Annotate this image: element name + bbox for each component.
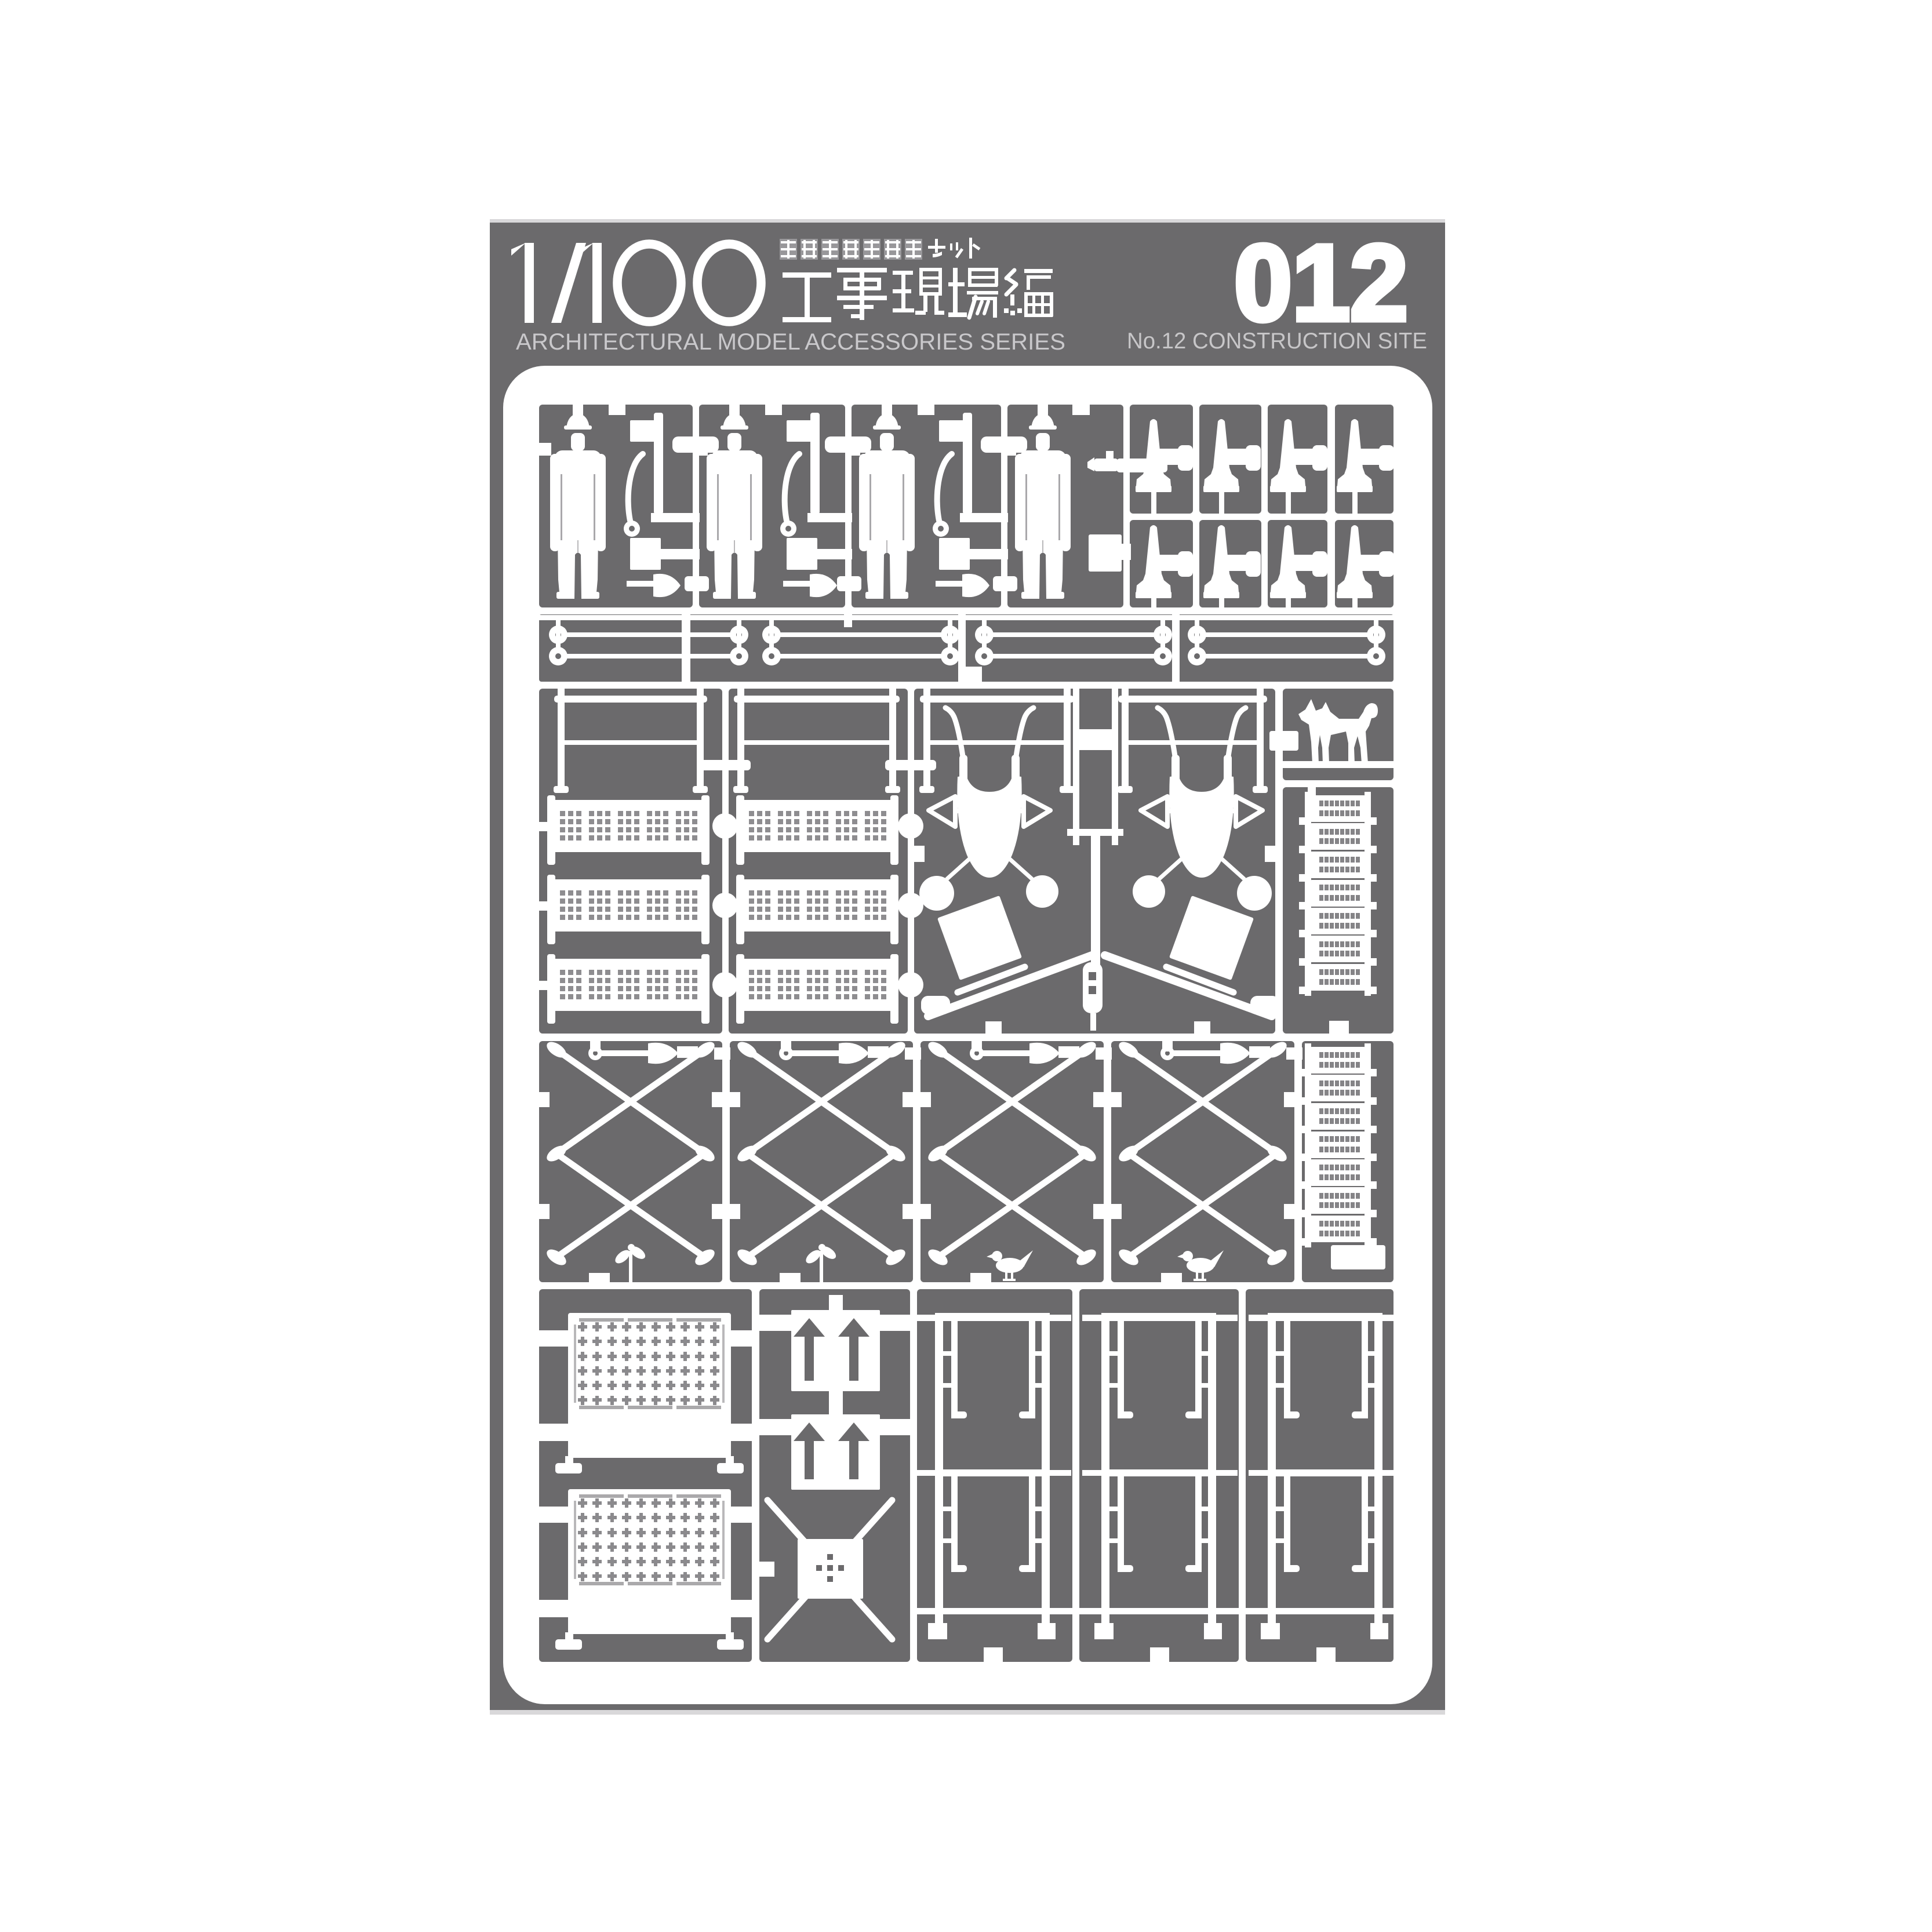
svg-text:ARCHITECTURAL MODEL ACCESSORIE: ARCHITECTURAL MODEL ACCESSORIES SERIES (516, 329, 1065, 355)
svg-text:No.12 CONSTRUCTION SITE: No.12 CONSTRUCTION SITE (1127, 329, 1427, 354)
svg-text:012: 012 (1234, 223, 1408, 343)
